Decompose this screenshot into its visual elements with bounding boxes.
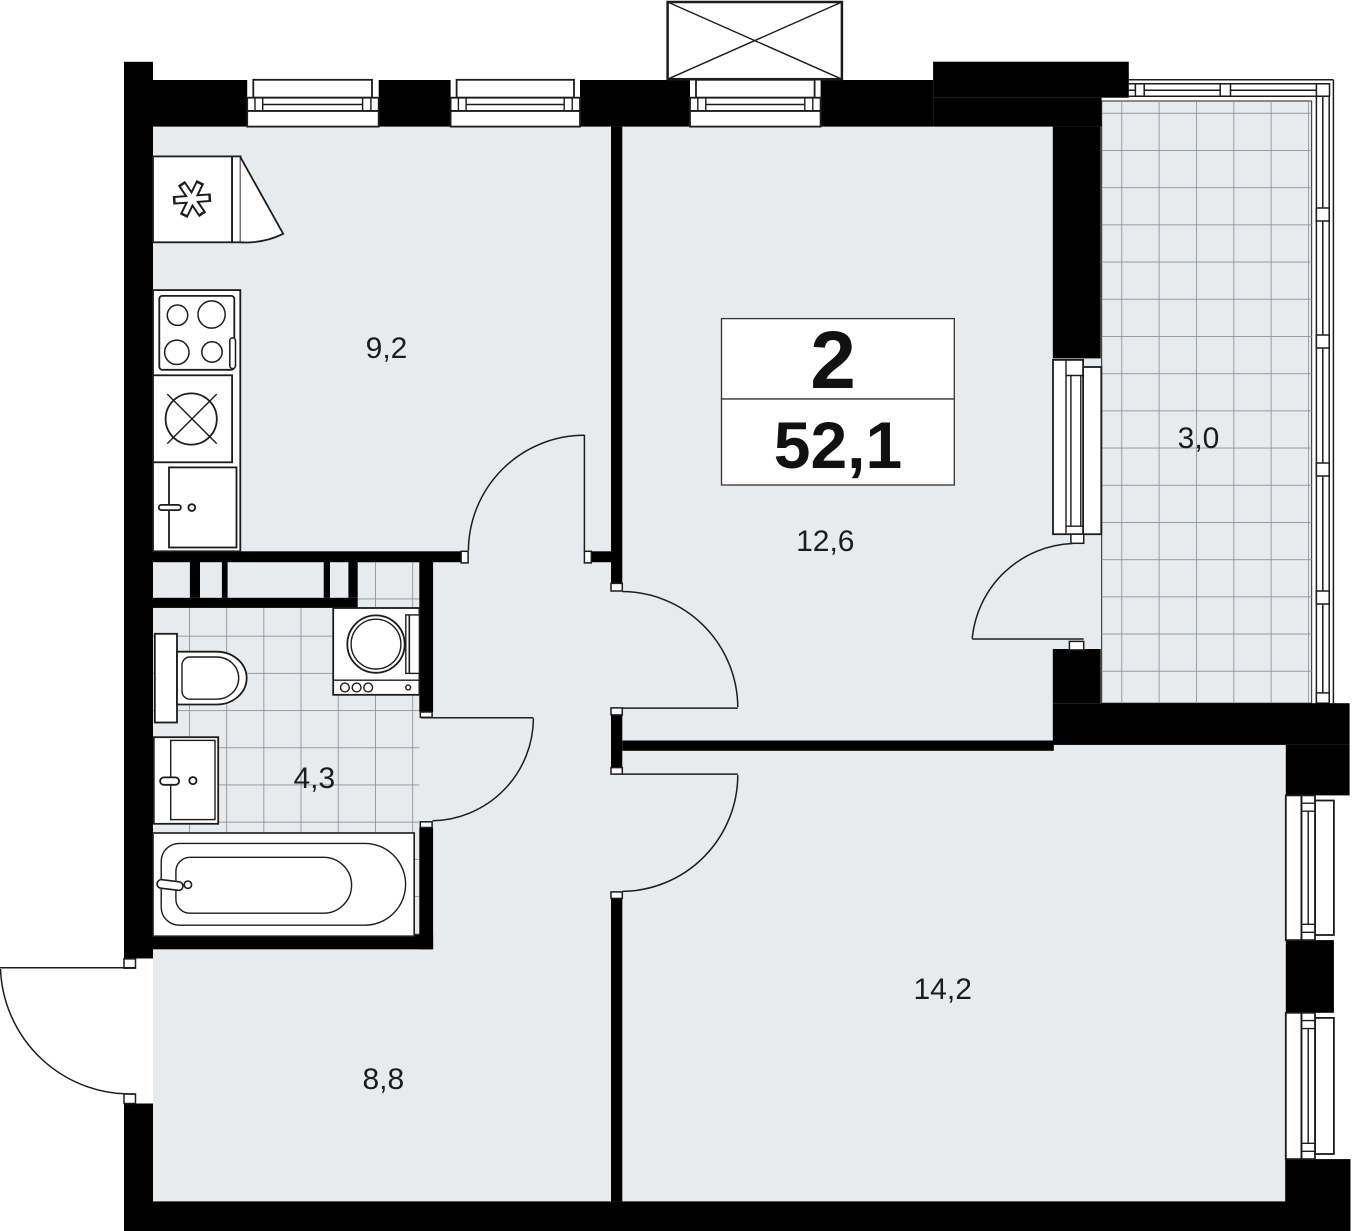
svg-text:8,8: 8,8 bbox=[362, 1063, 404, 1096]
svg-text:3,0: 3,0 bbox=[1178, 422, 1220, 455]
svg-text:14,2: 14,2 bbox=[914, 973, 972, 1006]
svg-text:12,6: 12,6 bbox=[796, 525, 854, 558]
svg-text:2: 2 bbox=[810, 315, 856, 406]
svg-text:9,2: 9,2 bbox=[366, 332, 408, 365]
svg-text:52,1: 52,1 bbox=[774, 408, 902, 482]
svg-text:4,3: 4,3 bbox=[293, 762, 335, 795]
